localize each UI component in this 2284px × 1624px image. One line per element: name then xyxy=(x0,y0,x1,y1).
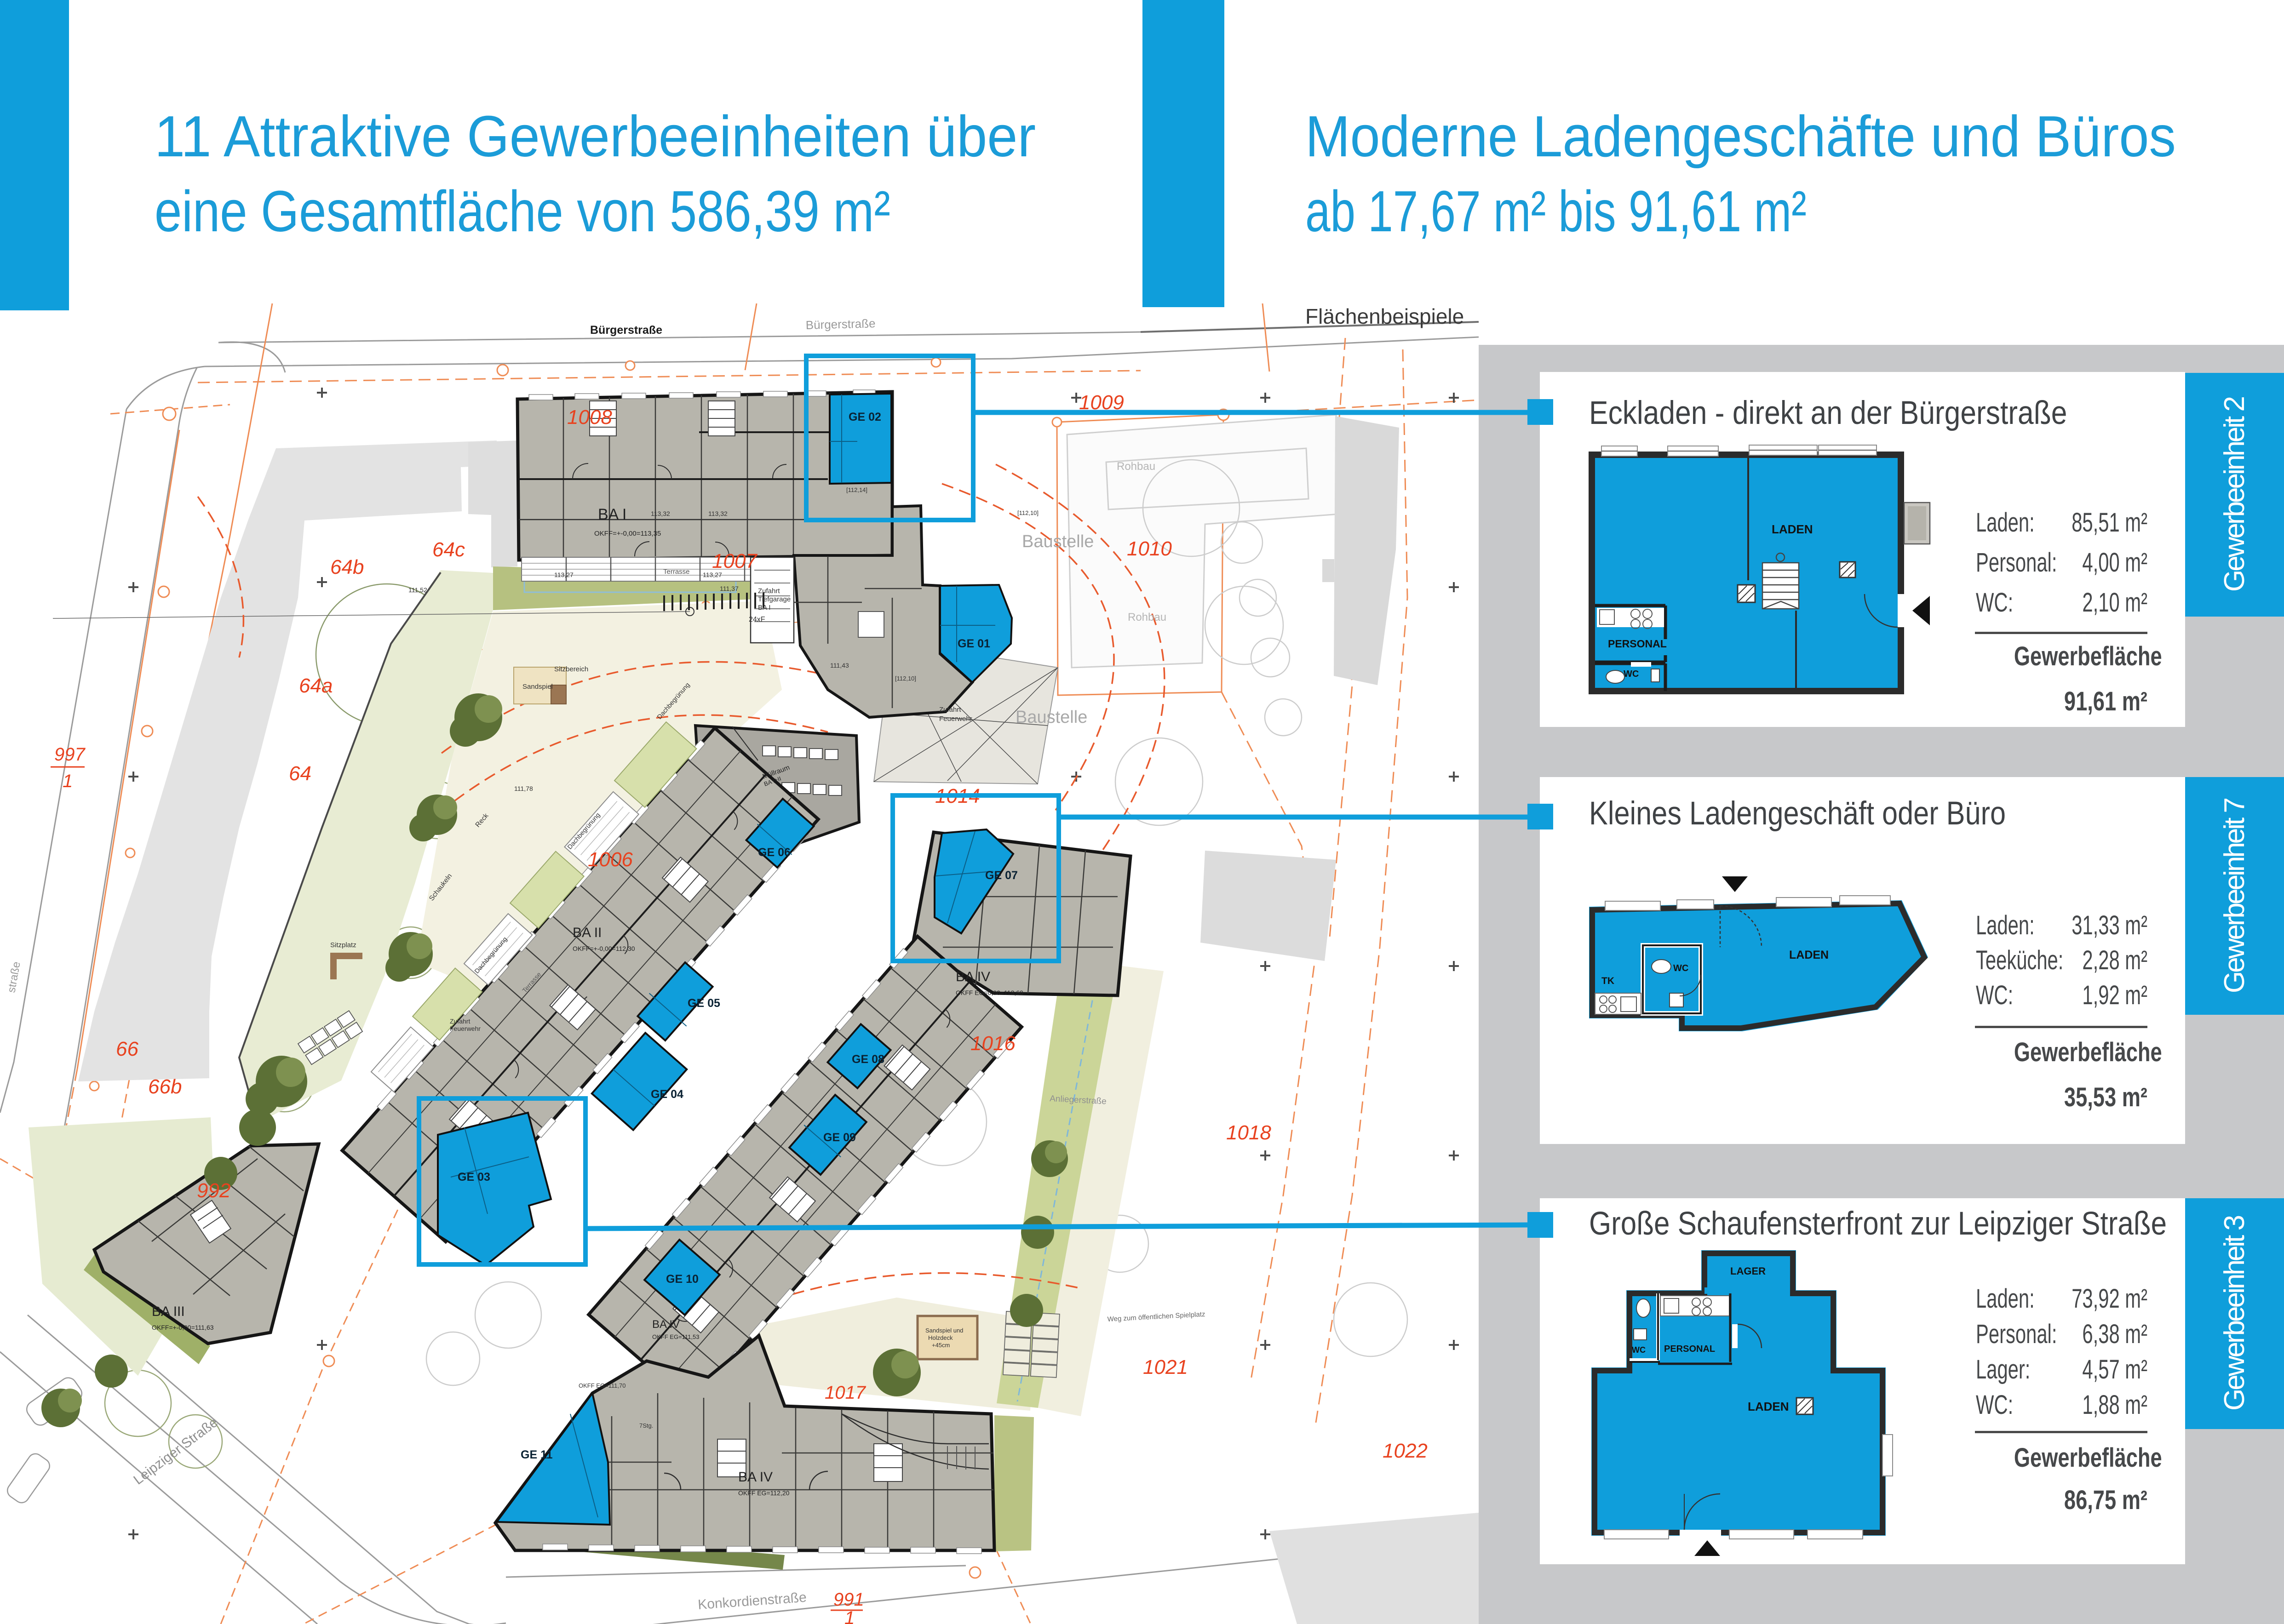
svg-text:Tiefgarage: Tiefgarage xyxy=(758,595,791,603)
svg-text:Feuerwehr: Feuerwehr xyxy=(450,1025,481,1032)
svg-text:Holzdeck: Holzdeck xyxy=(928,1334,953,1341)
svg-text:+45cm: +45cm xyxy=(932,1342,950,1349)
svg-text:GE 06: GE 06 xyxy=(758,846,791,859)
svg-text:997: 997 xyxy=(54,744,86,765)
svg-text:BA IV: BA IV xyxy=(956,969,990,984)
svg-text:Bürgerstraße: Bürgerstraße xyxy=(805,316,875,332)
svg-text:24xF: 24xF xyxy=(749,616,765,623)
svg-text:64b: 64b xyxy=(330,556,364,578)
svg-text:Zufahrt: Zufahrt xyxy=(939,706,961,714)
svg-text:GE 05: GE 05 xyxy=(688,997,720,1010)
svg-text:66b: 66b xyxy=(148,1075,182,1098)
svg-text:[112,10]: [112,10] xyxy=(895,675,916,682)
svg-text:113,32: 113,32 xyxy=(651,510,670,517)
svg-text:64: 64 xyxy=(289,762,311,785)
svg-text:992: 992 xyxy=(197,1179,230,1202)
svg-text:1017: 1017 xyxy=(825,1383,867,1403)
svg-text:BA I: BA I xyxy=(598,506,626,523)
svg-text:GE 03: GE 03 xyxy=(458,1171,490,1184)
svg-text:Sitzbereich: Sitzbereich xyxy=(554,665,588,673)
svg-text:GE 11: GE 11 xyxy=(521,1448,553,1461)
svg-text:BA IV: BA IV xyxy=(652,1318,680,1331)
svg-text:GE 07: GE 07 xyxy=(985,869,1018,882)
svg-text:BA IV: BA IV xyxy=(738,1470,773,1485)
svg-text:Konkordienstraße: Konkordienstraße xyxy=(697,1590,807,1613)
svg-text:straße: straße xyxy=(5,961,23,994)
svg-text:111,43: 111,43 xyxy=(830,662,849,669)
svg-text:OKFF=+-0,00=112,30: OKFF=+-0,00=112,30 xyxy=(573,945,635,952)
svg-text:Terrasse: Terrasse xyxy=(663,568,690,576)
svg-text:1022: 1022 xyxy=(1383,1440,1428,1462)
svg-text:OKFF EG=111,70: OKFF EG=111,70 xyxy=(579,1382,626,1389)
svg-text:OKFF=+-0,00=111,63: OKFF=+-0,00=111,63 xyxy=(152,1324,214,1331)
svg-text:111,37: 111,37 xyxy=(720,585,739,592)
svg-text:113,27: 113,27 xyxy=(554,571,574,578)
svg-text:991: 991 xyxy=(833,1590,864,1610)
svg-text:Feuerwehr: Feuerwehr xyxy=(939,715,972,723)
svg-text:111,52: 111,52 xyxy=(408,586,427,594)
svg-text:113,32: 113,32 xyxy=(708,510,728,517)
svg-text:1021: 1021 xyxy=(1143,1356,1188,1378)
svg-text:GE 01: GE 01 xyxy=(958,637,990,650)
svg-text:64a: 64a xyxy=(299,675,333,697)
svg-text:66: 66 xyxy=(116,1038,138,1060)
svg-text:GE 10: GE 10 xyxy=(666,1273,699,1286)
svg-text:Baustelle: Baustelle xyxy=(1022,532,1094,551)
svg-text:GE 04: GE 04 xyxy=(651,1088,683,1101)
svg-text:Sandspiel und: Sandspiel und xyxy=(925,1327,963,1334)
svg-text:1010: 1010 xyxy=(1127,538,1172,560)
svg-text:Weg zum öffentlichen Spielplat: Weg zum öffentlichen Spielplatz xyxy=(1107,1310,1205,1323)
svg-text:1009: 1009 xyxy=(1079,391,1124,414)
svg-text:[112,10]: [112,10] xyxy=(1017,509,1039,516)
svg-text:1008: 1008 xyxy=(567,406,612,429)
svg-text:Rohbau: Rohbau xyxy=(1128,611,1166,623)
svg-text:BA II: BA II xyxy=(573,925,602,940)
svg-text:64c: 64c xyxy=(432,538,465,561)
svg-text:GE 08: GE 08 xyxy=(852,1053,884,1066)
svg-text:113,27: 113,27 xyxy=(703,571,722,578)
svg-text:1018: 1018 xyxy=(1226,1121,1271,1144)
svg-text:7Stg.: 7Stg. xyxy=(639,1422,653,1429)
svg-text:OKFF EG=0,00=113,60: OKFF EG=0,00=113,60 xyxy=(956,989,1023,996)
svg-text:Leipziger Straße: Leipziger Straße xyxy=(131,1415,221,1488)
svg-text:1: 1 xyxy=(63,771,73,791)
svg-text:[112,14]: [112,14] xyxy=(846,486,867,493)
svg-text:Sitzplatz: Sitzplatz xyxy=(330,941,356,949)
svg-text:1016: 1016 xyxy=(970,1032,1016,1055)
svg-text:OKFF EG=111,53: OKFF EG=111,53 xyxy=(652,1333,699,1340)
svg-text:Sandspiel: Sandspiel xyxy=(522,683,553,691)
svg-text:Baustelle: Baustelle xyxy=(1016,708,1087,727)
svg-text:OKFF=+-0,00=113,35: OKFF=+-0,00=113,35 xyxy=(594,530,661,538)
svg-text:111,78: 111,78 xyxy=(514,785,533,792)
svg-text:GE 02: GE 02 xyxy=(849,411,881,423)
svg-text:BA I: BA I xyxy=(758,604,771,612)
svg-text:Rohbau: Rohbau xyxy=(1117,460,1155,473)
svg-text:BA III: BA III xyxy=(152,1304,185,1319)
svg-text:Zufahrt: Zufahrt xyxy=(758,587,780,595)
svg-text:1007: 1007 xyxy=(712,550,758,572)
svg-text:1006: 1006 xyxy=(588,848,633,871)
svg-text:Bürgerstraße: Bürgerstraße xyxy=(590,324,662,337)
svg-text:Zufahrt: Zufahrt xyxy=(450,1018,470,1025)
svg-text:GE 09: GE 09 xyxy=(823,1131,856,1144)
svg-text:OKFF EG=112,20: OKFF EG=112,20 xyxy=(738,1489,790,1497)
